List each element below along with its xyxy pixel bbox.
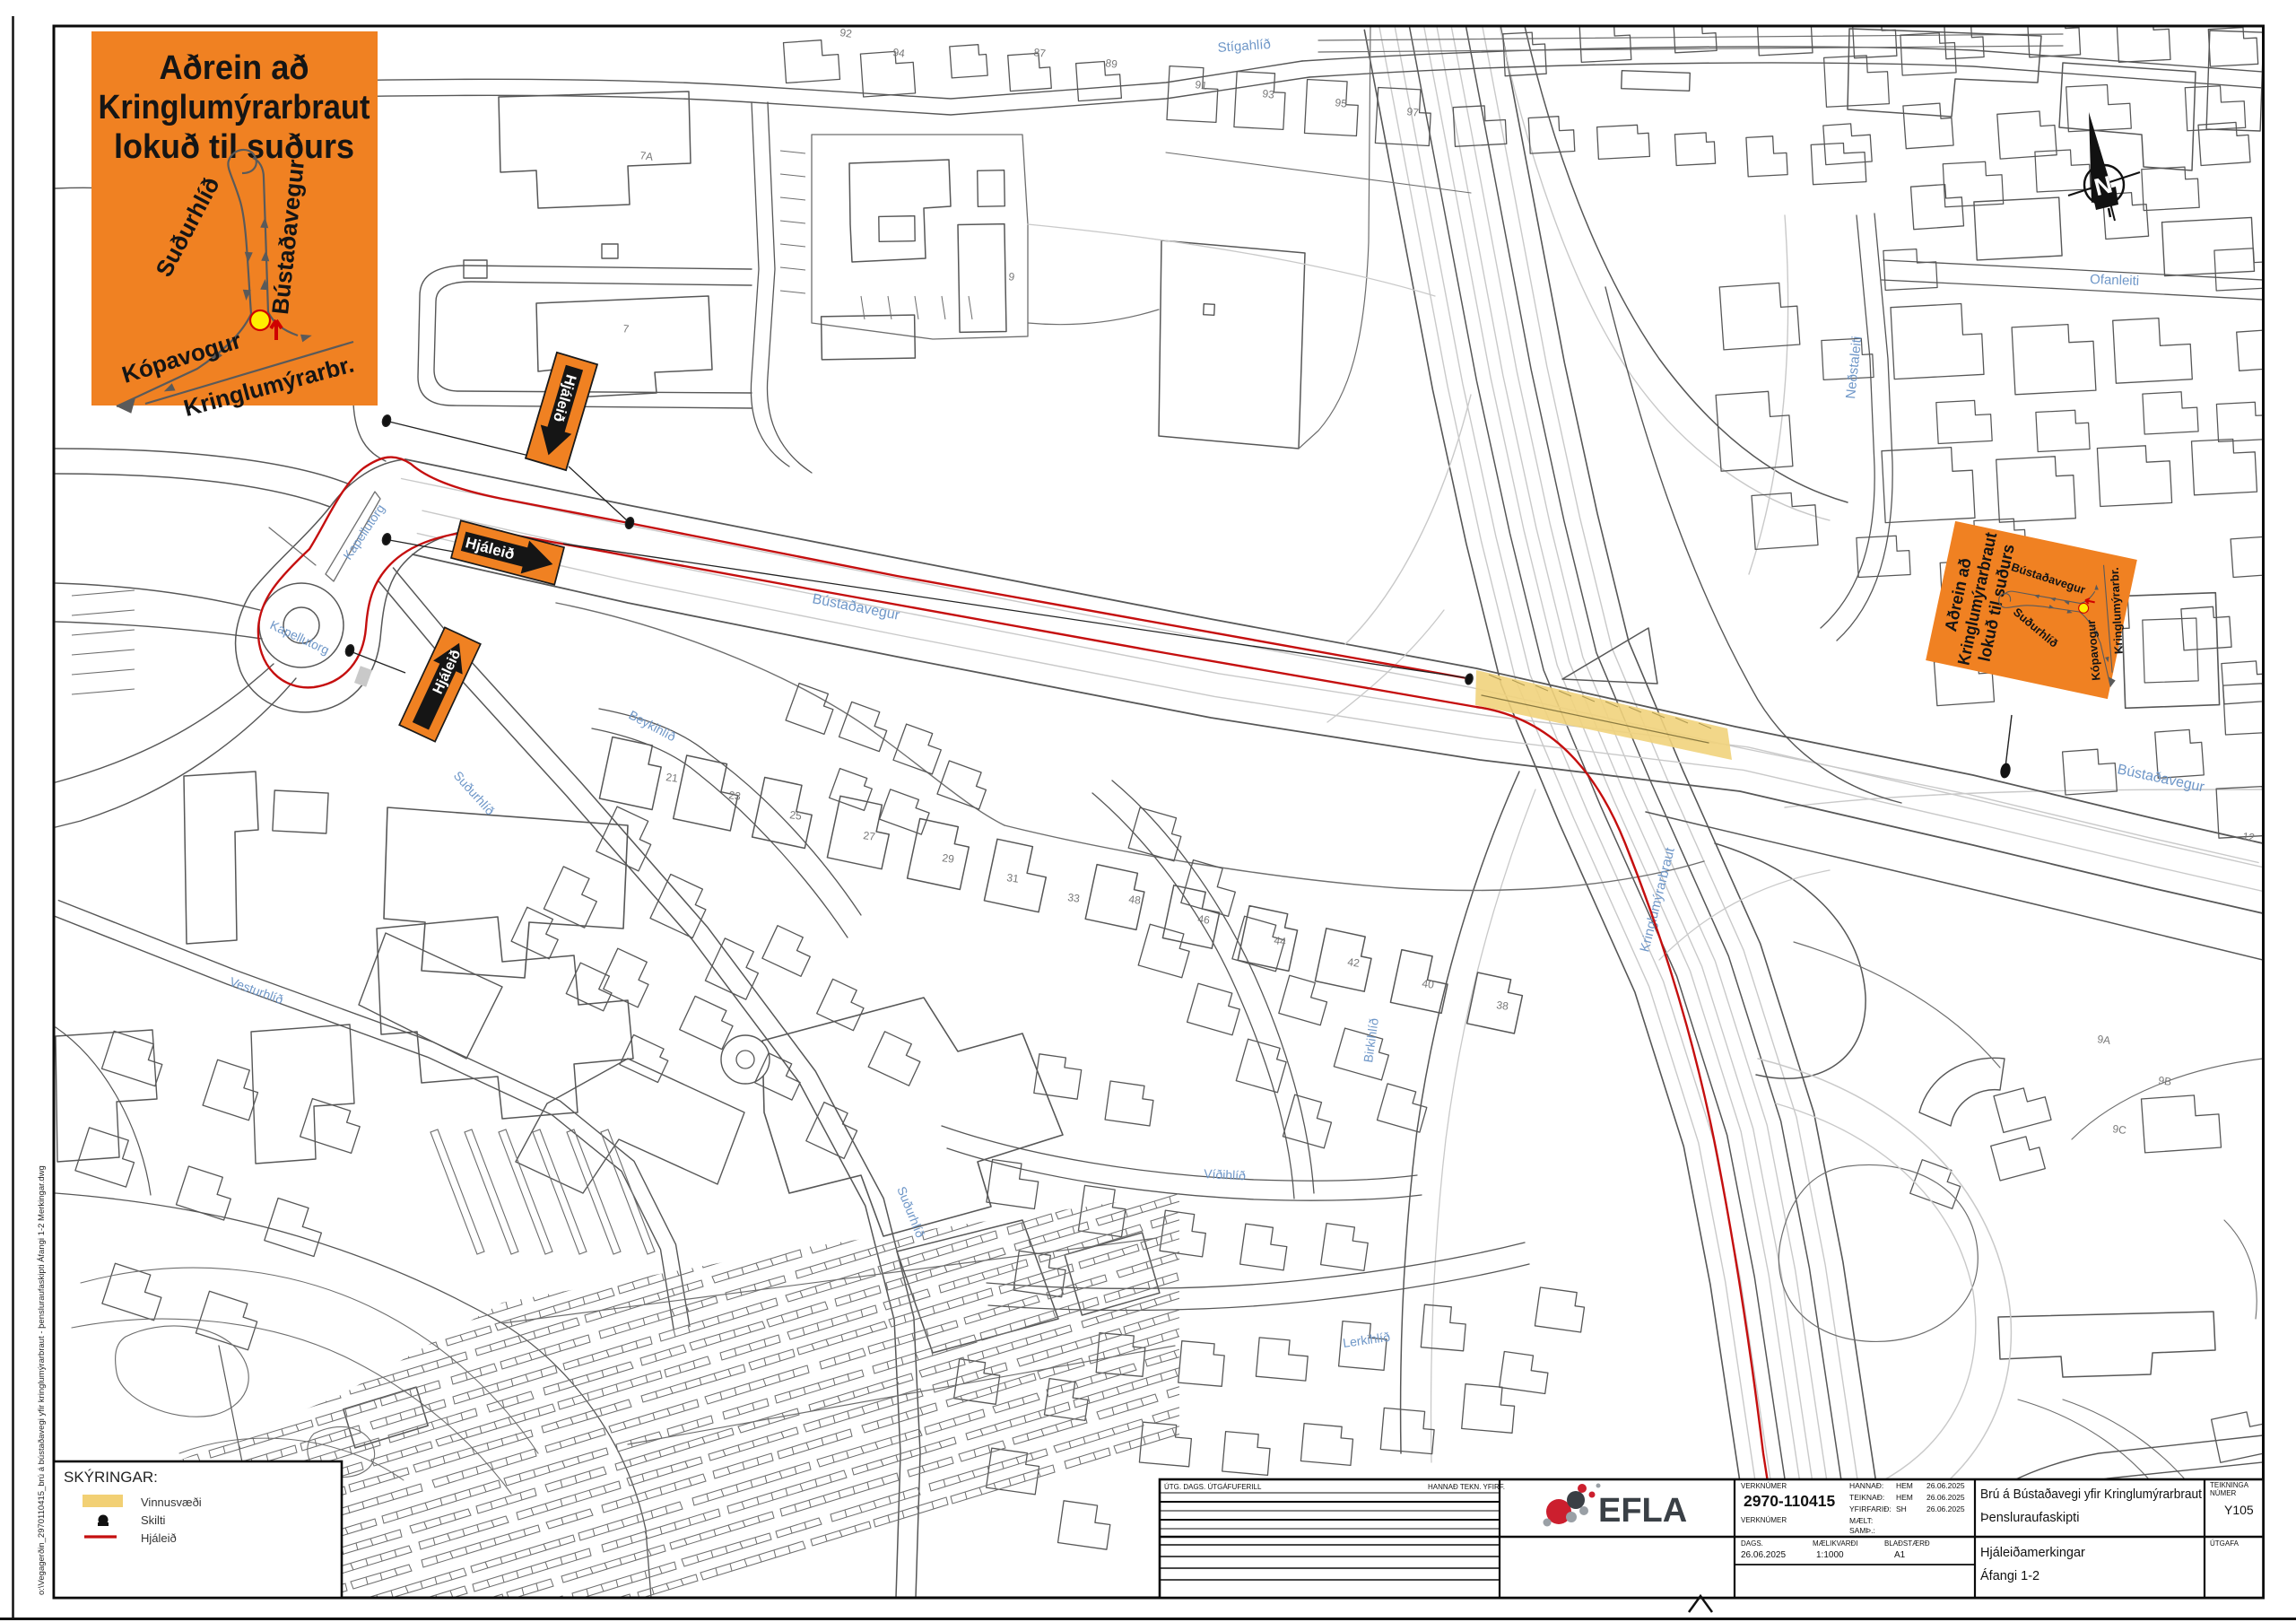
svg-text:HEM: HEM <box>1896 1493 1913 1502</box>
svg-text:48: 48 <box>1128 893 1142 907</box>
svg-text:12: 12 <box>2242 830 2256 844</box>
svg-text:VERKNÚMER: VERKNÚMER <box>1741 1516 1787 1524</box>
svg-text:26.06.2025: 26.06.2025 <box>1741 1550 1786 1560</box>
svg-text:31: 31 <box>1006 871 1020 885</box>
svg-text:SH: SH <box>1896 1504 1907 1513</box>
svg-text:46: 46 <box>1197 912 1211 927</box>
svg-text:MÆLIKVARÐI: MÆLIKVARÐI <box>1813 1539 1858 1548</box>
svg-text:Hjáleiðamerkingar: Hjáleiðamerkingar <box>1980 1546 2085 1560</box>
svg-text:VERKNÚMER: VERKNÚMER <box>1741 1482 1787 1490</box>
svg-text:TEIKNINGA: TEIKNINGA <box>2210 1481 2249 1489</box>
svg-text:89: 89 <box>1105 57 1118 71</box>
svg-text:9A: 9A <box>2097 1033 2111 1047</box>
svg-text:Ofanleiti: Ofanleiti <box>2090 272 2140 289</box>
svg-text:Brú á Bústaðavegi yfir Kringlu: Brú á Bústaðavegi yfir Kringlumýrarbraut <box>1980 1487 2202 1502</box>
svg-text:26.06.2025: 26.06.2025 <box>1926 1493 1965 1502</box>
svg-text:29: 29 <box>942 851 955 866</box>
svg-text:40: 40 <box>1422 977 1435 991</box>
svg-text:97: 97 <box>1406 105 1420 119</box>
svg-text:HANNAÐ TEKN. YFIRF.: HANNAÐ TEKN. YFIRF. <box>1428 1483 1505 1491</box>
svg-text:91: 91 <box>1195 78 1208 92</box>
svg-text:27: 27 <box>863 829 876 843</box>
svg-text:Vinnusvæði: Vinnusvæði <box>141 1496 202 1509</box>
svg-text:A1: A1 <box>1894 1550 1906 1560</box>
svg-text:26.06.2025: 26.06.2025 <box>1926 1504 1965 1513</box>
svg-text:lokuð til suðurs: lokuð til suðurs <box>114 128 354 166</box>
svg-text:Víðihlíð: Víðihlíð <box>1204 1166 1247 1182</box>
svg-text:o:\Vegagerðin_2970110415_brú á: o:\Vegagerðin_2970110415_brú á bústaðave… <box>37 1165 47 1595</box>
svg-text:42: 42 <box>1347 955 1361 970</box>
svg-text:Þensluraufaskipti: Þensluraufaskipti <box>1980 1511 2079 1525</box>
svg-text:Kringlumýrarbraut: Kringlumýrarbraut <box>99 89 370 126</box>
svg-text:HEM: HEM <box>1896 1481 1913 1490</box>
svg-text:9C: 9C <box>2112 1122 2127 1137</box>
svg-text:2970-110415: 2970-110415 <box>1744 1492 1835 1510</box>
svg-text:93: 93 <box>1262 87 1275 101</box>
svg-text:21: 21 <box>665 771 679 785</box>
svg-text:7A: 7A <box>639 149 654 163</box>
svg-text:38: 38 <box>1496 998 1509 1013</box>
svg-text:ÚTGAFA: ÚTGAFA <box>2210 1539 2239 1548</box>
svg-text:33: 33 <box>1067 891 1081 905</box>
svg-text:NÚMER: NÚMER <box>2210 1489 2237 1497</box>
svg-text:HANNAÐ:: HANNAÐ: <box>1849 1481 1883 1490</box>
svg-text:YFIRFARIÐ:: YFIRFARIÐ: <box>1849 1504 1892 1513</box>
svg-text:94: 94 <box>892 46 906 60</box>
svg-text:TEIKNAÐ:: TEIKNAÐ: <box>1849 1493 1884 1502</box>
svg-text:1:1000: 1:1000 <box>1816 1550 1844 1560</box>
svg-text:9B: 9B <box>2158 1074 2172 1088</box>
svg-text:Aðrein að: Aðrein að <box>160 49 309 87</box>
svg-text:ÚTG. DAGS. ÚTGÁFUFERI: ÚTG. DAGS. ÚTGÁFUFERILL <box>1164 1483 1262 1491</box>
svg-text:92: 92 <box>839 26 853 40</box>
svg-text:26.06.2025: 26.06.2025 <box>1926 1481 1965 1490</box>
svg-text:95: 95 <box>1335 96 1348 110</box>
svg-text:MÆLT:: MÆLT: <box>1849 1516 1873 1525</box>
svg-text:23: 23 <box>728 789 742 803</box>
svg-text:SAMÞ.:: SAMÞ.: <box>1849 1526 1875 1535</box>
svg-text:25: 25 <box>789 808 803 823</box>
svg-text:87: 87 <box>1033 46 1047 60</box>
svg-text:Skilti: Skilti <box>141 1513 166 1527</box>
svg-text:DAGS.: DAGS. <box>1741 1539 1763 1548</box>
svg-text:Y105: Y105 <box>2224 1503 2254 1517</box>
svg-text:SKÝRINGAR:: SKÝRINGAR: <box>64 1469 158 1486</box>
svg-text:BLAÐSTÆRÐ: BLAÐSTÆRÐ <box>1884 1539 1930 1548</box>
svg-text:44: 44 <box>1274 934 1287 948</box>
svg-text:EFLA: EFLA <box>1598 1492 1687 1530</box>
svg-text:Hjáleið: Hjáleið <box>141 1531 177 1545</box>
svg-text:Áfangi 1-2: Áfangi 1-2 <box>1980 1568 2039 1583</box>
